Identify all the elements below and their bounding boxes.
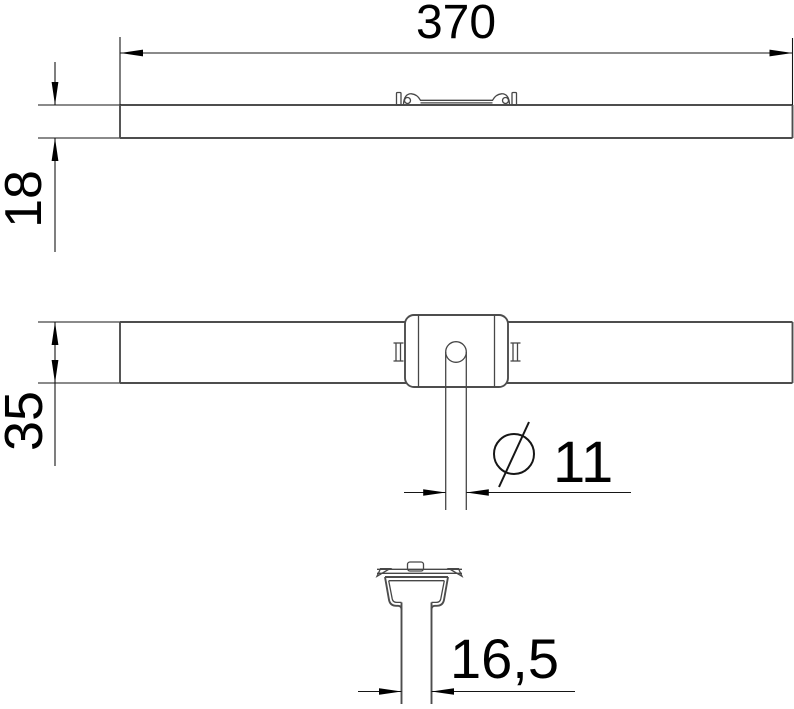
spring-clip-profile xyxy=(397,93,517,106)
arrow-down-icon xyxy=(52,82,59,105)
dim-stem-width-label: 16,5 xyxy=(450,627,559,690)
clip-end-right xyxy=(511,343,521,361)
arrow-left-icon xyxy=(466,489,489,496)
arrow-right-icon xyxy=(379,688,402,695)
diameter-symbol xyxy=(494,422,534,487)
drawing-canvas: 370 18 xyxy=(0,0,794,709)
center-block xyxy=(405,315,508,387)
channel-section xyxy=(385,577,448,610)
clip-section xyxy=(377,562,462,576)
arrow-left-icon xyxy=(120,50,143,57)
dim-overall-length-label: 370 xyxy=(416,0,496,49)
section-view: 16,5 xyxy=(358,562,575,704)
arrow-right-icon xyxy=(770,50,793,57)
dim-pin-diameter-label: 11 xyxy=(553,430,613,495)
dim-profile-height-label: 18 xyxy=(0,170,53,228)
dim-overall-length: 370 xyxy=(120,0,793,105)
stem-section xyxy=(402,602,432,704)
top-view: 370 18 xyxy=(0,0,793,252)
arrow-up-icon xyxy=(52,322,59,345)
clip-end-left xyxy=(394,343,404,361)
arrow-down-icon xyxy=(52,360,59,383)
arrow-right-icon xyxy=(423,489,446,496)
dim-stem-width: 16,5 xyxy=(358,627,575,695)
rail-front-view xyxy=(38,322,793,383)
dim-profile-height: 18 xyxy=(0,62,58,252)
arrow-up-icon xyxy=(52,138,59,161)
dim-profile-width: 35 xyxy=(0,322,58,466)
suspension-pin xyxy=(446,342,467,510)
rail-top-view xyxy=(38,105,793,138)
technical-drawing: 370 18 xyxy=(0,0,794,709)
dim-profile-width-label: 35 xyxy=(0,391,54,451)
front-view: 35 11 xyxy=(0,315,793,510)
dim-pin-diameter: 11 xyxy=(404,422,631,496)
